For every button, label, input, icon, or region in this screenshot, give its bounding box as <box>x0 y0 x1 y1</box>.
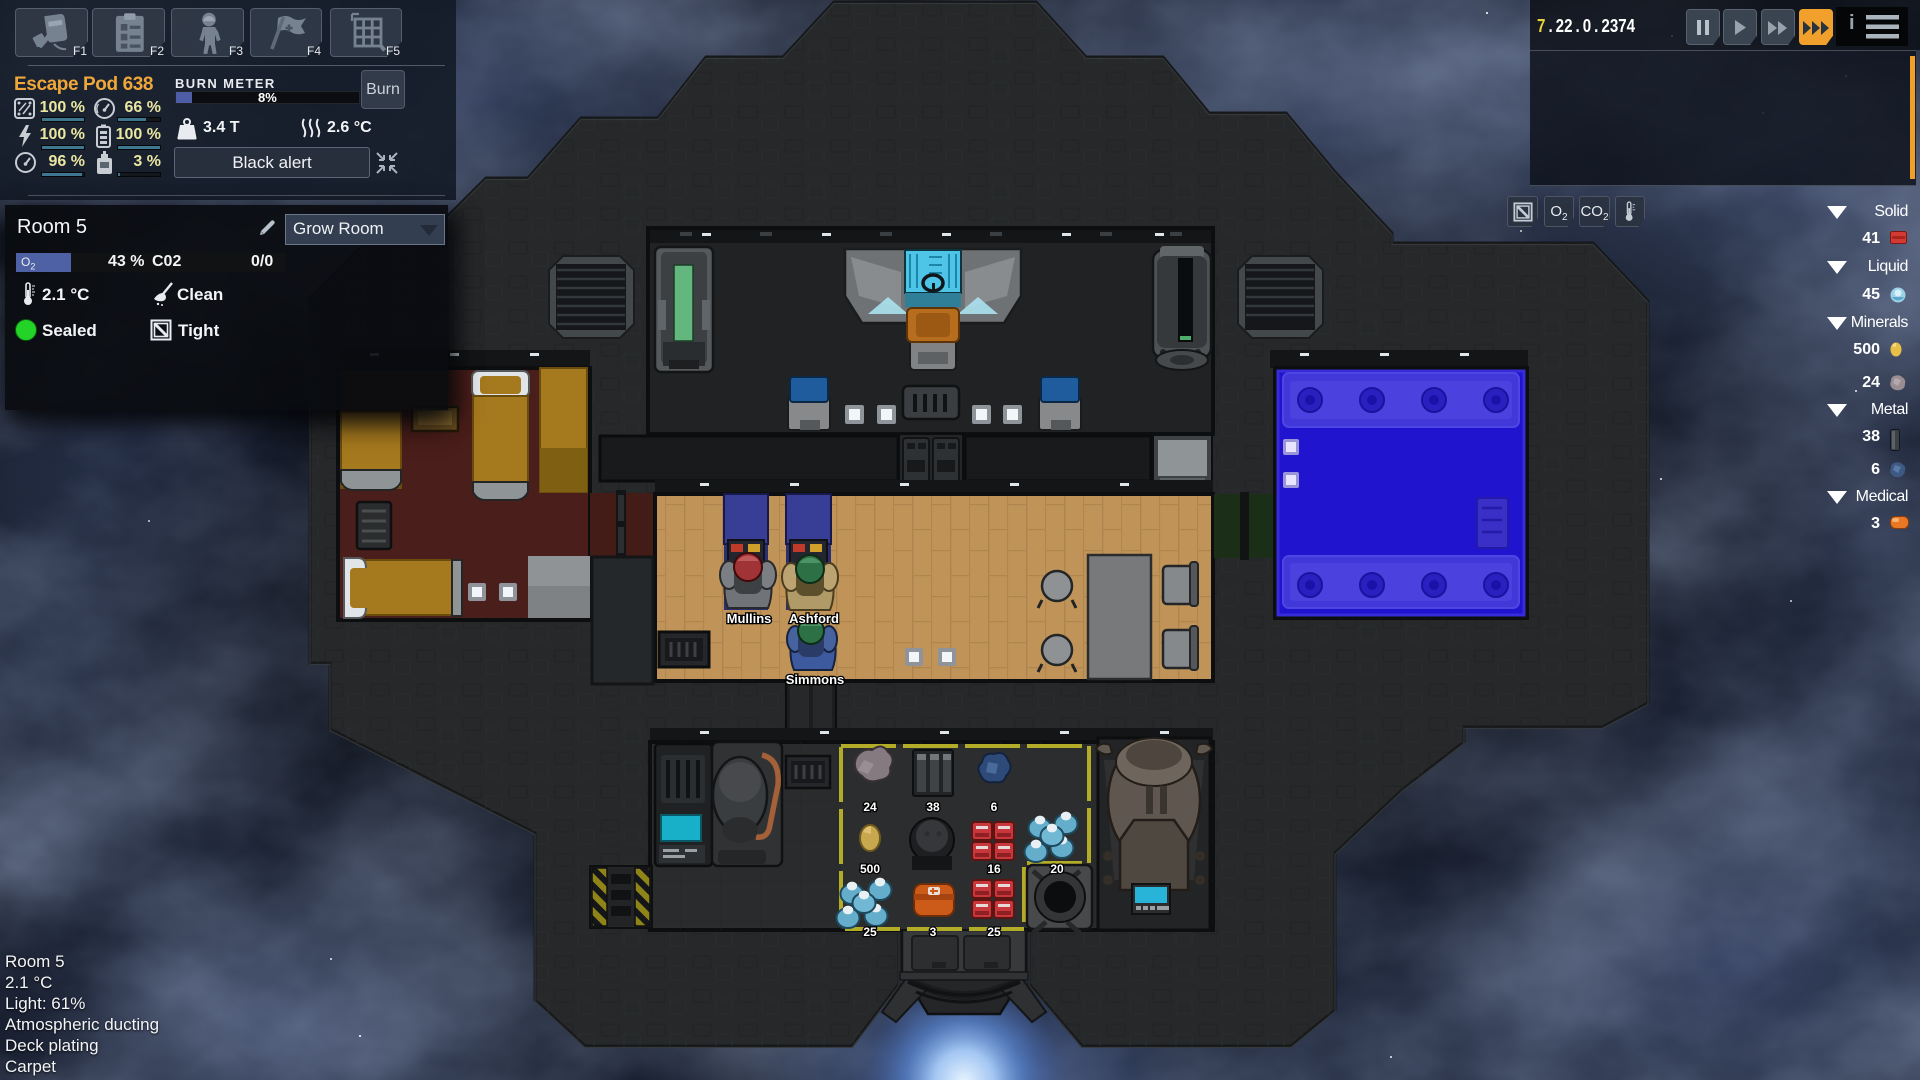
svg-text:25: 25 <box>863 925 877 939</box>
svg-text:16: 16 <box>987 862 1001 876</box>
svg-text:38: 38 <box>926 800 940 814</box>
svg-text:20: 20 <box>1050 862 1064 876</box>
svg-text:3: 3 <box>930 925 937 939</box>
svg-text:Simmons: Simmons <box>786 672 845 687</box>
svg-text:6: 6 <box>991 800 998 814</box>
svg-text:25: 25 <box>987 925 1001 939</box>
svg-text:24: 24 <box>863 800 877 814</box>
svg-text:Ashford: Ashford <box>789 611 839 626</box>
svg-text:500: 500 <box>860 862 880 876</box>
svg-text:Mullins: Mullins <box>727 611 772 626</box>
